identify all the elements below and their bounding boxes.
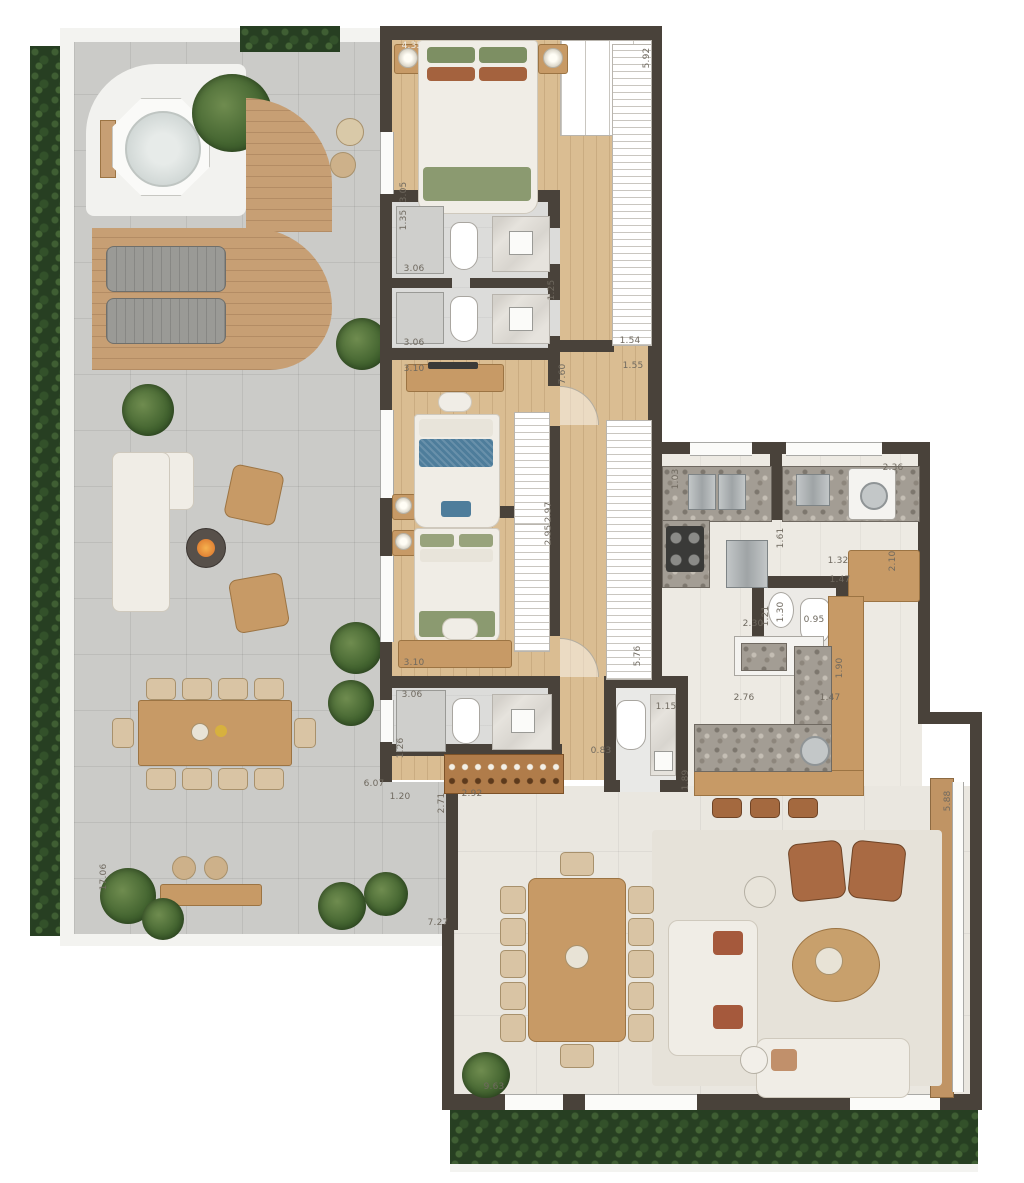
- dimension-label: 1.61: [776, 528, 786, 549]
- dimension-label: 1.30: [776, 602, 786, 623]
- dimension-label: 1.54: [620, 336, 641, 346]
- dimension-label: 3.05: [399, 182, 409, 203]
- dimension-label: 5.76: [633, 646, 643, 667]
- dimension-label: 5.92: [642, 48, 652, 69]
- dimension-label: 2.36: [883, 463, 904, 473]
- dimension-label: 1.03: [671, 469, 681, 490]
- dimension-label: 1.47: [820, 693, 841, 703]
- dimension-label: 0.83: [591, 746, 612, 756]
- dimension-label: 1.47: [830, 575, 851, 585]
- dimension-label: 2.92: [462, 789, 483, 799]
- dimension-label: 2.30: [743, 619, 764, 629]
- dimension-label: 3.10: [404, 364, 425, 374]
- dimension-label: 0.95: [804, 615, 825, 625]
- dimension-label: 4.35: [402, 41, 423, 51]
- dimension-label: 1.15: [656, 702, 677, 712]
- dimension-label: 2.10: [888, 551, 898, 572]
- dimension-label: 5.88: [943, 791, 953, 812]
- dimension-label: 2.71: [437, 793, 447, 814]
- floor-plan: 4.355.923.051.353.061.253.061.541.557.60…: [0, 0, 1024, 1183]
- dimension-label: 2.97: [544, 502, 554, 523]
- dimension-label: 1.55: [623, 361, 644, 371]
- dimension-label: 3.10: [404, 658, 425, 668]
- dimension-label: 2.95: [544, 525, 554, 546]
- dimension-label: 1.20: [390, 792, 411, 802]
- dimension-label: 6.07: [364, 779, 385, 789]
- dimension-label: 1.26: [396, 738, 406, 759]
- dimension-label: 17.06: [99, 864, 109, 891]
- dimension-label: 1.35: [399, 210, 409, 231]
- dimension-label: 3.06: [404, 264, 425, 274]
- dimension-label: 3.06: [402, 690, 423, 700]
- dimension-label: 9.63: [484, 1082, 505, 1092]
- dimension-label: 1.32: [828, 556, 849, 566]
- dimension-label: 3.06: [404, 338, 425, 348]
- dimension-label: 2.76: [734, 693, 755, 703]
- dimension-label: 1.89: [681, 770, 691, 791]
- dimension-label: 1.25: [547, 280, 557, 301]
- dimension-label: 7.60: [558, 364, 568, 385]
- dimension-label: 7.27: [428, 918, 449, 928]
- dimension-label: 1.90: [835, 658, 845, 679]
- dimension-labels-layer: 4.355.923.051.353.061.253.061.541.557.60…: [0, 0, 1024, 1183]
